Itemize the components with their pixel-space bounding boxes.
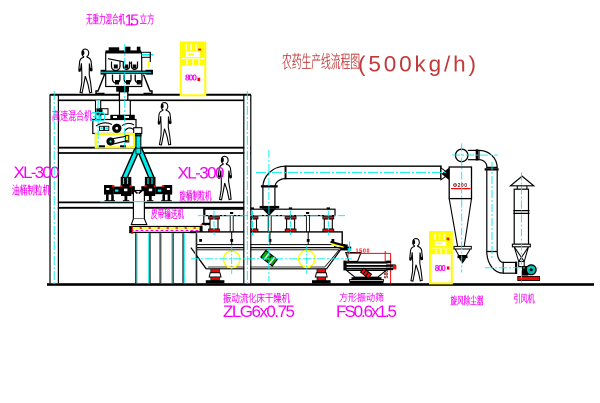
svg-text:800: 800	[185, 73, 197, 83]
svg-text:XL-300: XL-300	[14, 163, 60, 182]
svg-text:800: 800	[435, 264, 447, 273]
svg-text:FS0.6x1.5: FS0.6x1.5	[336, 302, 397, 321]
svg-text:(500kg/h): (500kg/h)	[358, 52, 476, 77]
svg-text:1500: 1500	[356, 249, 370, 255]
svg-text:ZLG6x0.75: ZLG6x0.75	[223, 302, 295, 321]
svg-text:1.5: 1.5	[125, 13, 140, 30]
svg-text:XL-300: XL-300	[178, 163, 225, 182]
